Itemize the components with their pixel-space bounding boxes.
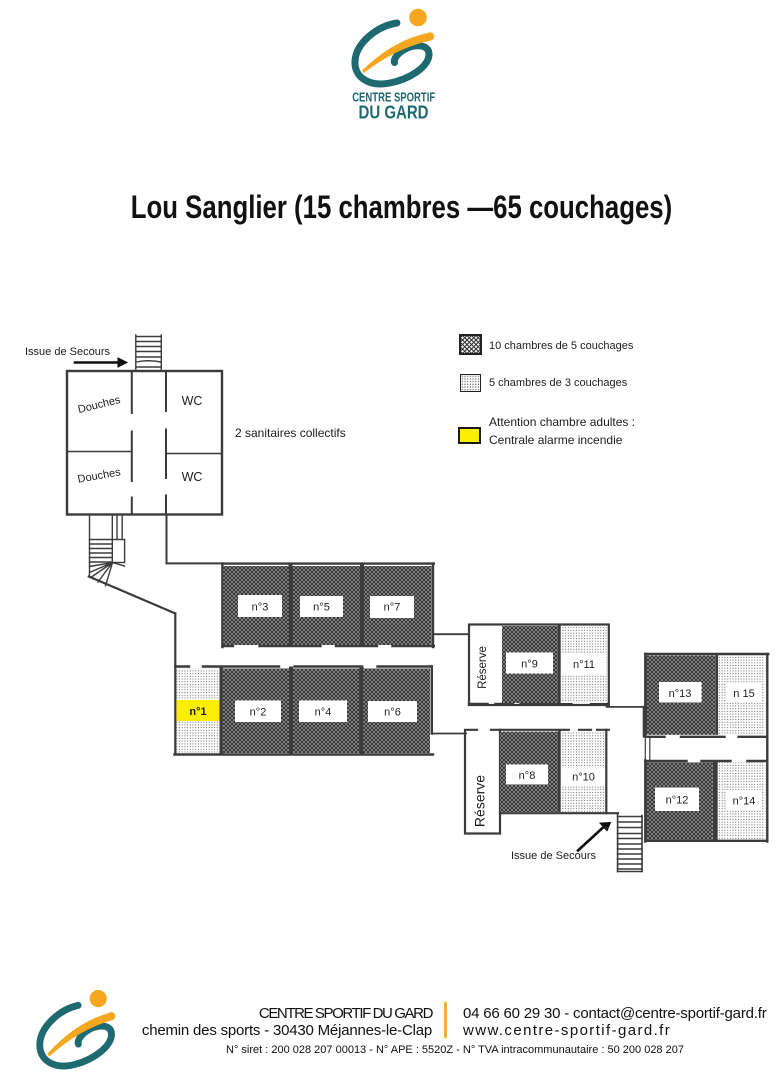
svg-text:n°12: n°12 [666,795,689,807]
svg-text:WC: WC [182,470,203,484]
svg-text:n°14: n°14 [733,796,756,808]
svg-text:Réserve: Réserve [477,646,489,689]
svg-text:n°11: n°11 [573,659,595,671]
svg-text:n°13: n°13 [669,688,692,700]
svg-text:n°7: n°7 [384,602,401,614]
svg-text:Douches: Douches [77,466,122,485]
svg-text:n°4: n°4 [315,707,332,719]
svg-text:n°3: n°3 [252,602,269,614]
svg-text:n°2: n°2 [250,707,267,719]
svg-text:n°10: n°10 [572,772,595,784]
svg-text:n°9: n°9 [521,659,538,671]
svg-text:Douches: Douches [77,394,123,416]
svg-text:WC: WC [182,394,203,408]
svg-text:n°1: n°1 [189,706,206,718]
svg-text:n°6: n°6 [384,707,401,719]
svg-text:n°5: n°5 [313,602,330,614]
svg-text:Réserve: Réserve [472,775,488,827]
svg-text:n 15: n 15 [733,688,754,700]
svg-text:n°8: n°8 [519,770,536,782]
